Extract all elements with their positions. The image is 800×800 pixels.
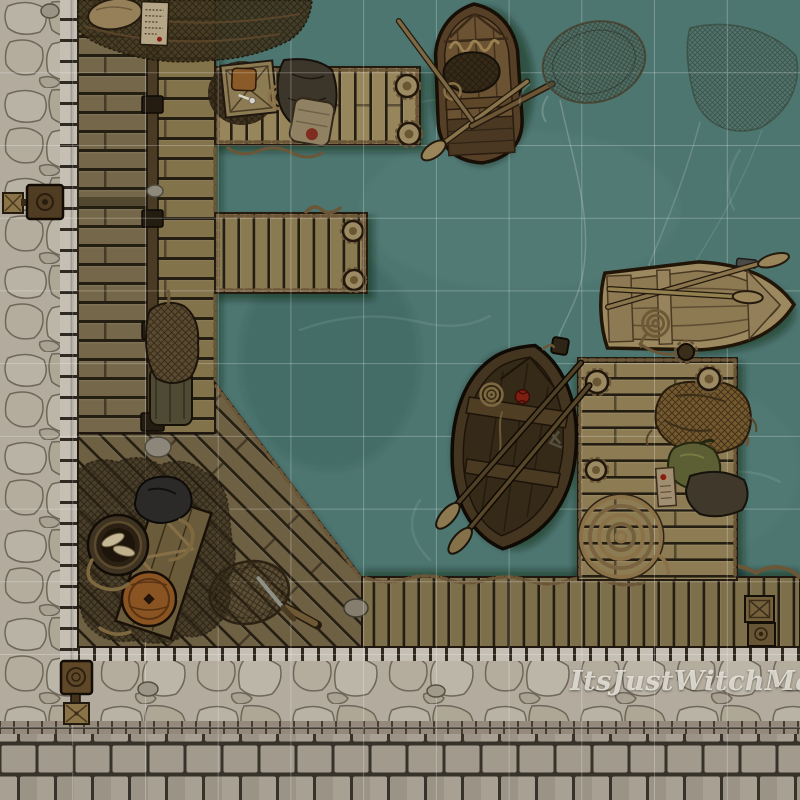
upper-pier [208,59,422,157]
leather-pouch [232,68,257,91]
mooring-post-with-box [61,661,92,724]
crate-with-pipe [220,60,277,117]
curb-left-column [60,0,78,661]
battle-map: ItsJustWitchMaps. [0,0,800,800]
orange-barrel [122,572,176,626]
paved-road [0,734,800,800]
rock-on-deck [344,599,368,617]
bedroll [288,97,335,147]
deck-stone [145,437,171,457]
dark-sack [135,477,192,523]
map-canvas [0,0,800,800]
dark-tarp-right [686,472,748,516]
parchment-label [656,467,677,506]
open-fish-barrel [88,515,148,575]
stacked-crates [745,596,775,646]
notice-paper [140,2,168,46]
